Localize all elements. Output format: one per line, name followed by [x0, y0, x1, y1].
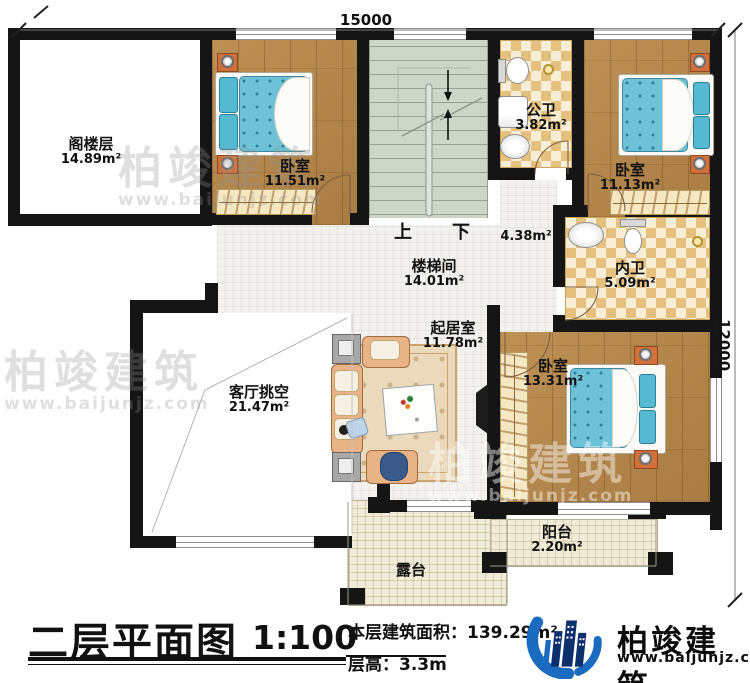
title-underline-thin	[28, 664, 346, 665]
pillar-balcony-se	[648, 552, 673, 575]
wall-bedroom1-bottom-b	[350, 213, 360, 225]
stair-down-label: 下	[452, 218, 470, 244]
floorplan-canvas: 柏竣建筑 www.baijunjz.com 柏竣建筑 www.baijunjz.…	[0, 0, 750, 683]
living-sofa-cushion-1	[334, 370, 359, 392]
floor-height-row: 层高：3.3m	[348, 650, 447, 675]
living-void-floor	[143, 313, 352, 536]
window-void-bottom	[176, 536, 314, 548]
room-label-void: 客厅挑空 21.47m²	[204, 384, 314, 415]
bedroom3-lamp-bottom	[639, 452, 652, 465]
window-bedroom3-right	[710, 378, 722, 462]
bedroom1-lamp-top	[221, 55, 234, 68]
public-bath-toilet-tank	[498, 59, 506, 83]
wall-void-bottom-a	[130, 536, 176, 548]
bedroom1-lamp-bottom	[221, 157, 234, 170]
corridor-patch-floor	[500, 180, 557, 228]
room-label-stairwell: 楼梯间 14.01m²	[390, 258, 478, 289]
inner-bath-shower-knob	[692, 236, 703, 247]
stairwell-floor	[369, 33, 488, 218]
wall-publicbath-bottom-b	[566, 168, 572, 180]
pillar-terrace-sw	[340, 588, 365, 605]
bedroom2-lamp-bottom	[693, 157, 706, 170]
pillar-terrace-top	[368, 497, 390, 513]
room-label-bedroom1: 卧室 11.51m²	[250, 158, 340, 189]
window-stair-top	[394, 28, 466, 40]
brand-logo-icon	[518, 601, 610, 679]
room-label-public-bath: 公卫 3.82m²	[500, 102, 582, 133]
wall-void-left	[130, 300, 143, 548]
attic-room	[8, 28, 212, 226]
wall-innerbath-left-a	[553, 217, 565, 287]
public-bath-shower-knob	[543, 64, 554, 75]
public-bath-sink	[500, 134, 530, 159]
living-side-table-bottom-inner	[338, 458, 354, 474]
bedroom1-wardrobe	[216, 189, 316, 215]
wall-void-bottom-b	[314, 536, 352, 548]
living-armchair-top-cushion	[370, 340, 400, 360]
floor-area-label: 本层建筑面积：	[348, 623, 467, 643]
dimension-right: 12000	[715, 319, 733, 371]
title-underline-thick	[28, 657, 346, 661]
floor-height-value: 3.3m	[399, 655, 447, 675]
room-label-living: 起居室 11.78m²	[408, 320, 498, 351]
floor-height-label: 层高：	[348, 655, 399, 675]
window-bedroom1-top	[236, 28, 336, 40]
pillar-balcony-nw	[474, 502, 506, 519]
room-label-bedroom2: 卧室 11.13m²	[585, 162, 675, 193]
wall-void-top	[130, 300, 218, 313]
inner-bath-toilet-tank	[620, 219, 646, 227]
living-sofa-cushion-2	[334, 394, 359, 416]
room-label-corridor-area: 4.38m²	[486, 230, 566, 245]
bedroom2-wardrobe	[610, 190, 710, 215]
bedroom1-blanket	[274, 77, 310, 151]
bedroom3-pillow-1	[639, 374, 656, 408]
bedroom3-lamp-top	[639, 348, 652, 361]
wall-innerbath-top-a	[553, 205, 588, 217]
inner-bath-toilet-bowl	[624, 228, 642, 254]
living-coffee-table	[382, 384, 438, 436]
window-balcony-door	[558, 502, 650, 515]
bedroom3-pillow-2	[639, 410, 656, 444]
inner-bath-sink	[568, 222, 604, 248]
living-person-seated	[380, 452, 408, 481]
bedroom2-lamp-top	[693, 55, 706, 68]
brand-website: www.baijunjz.com	[617, 650, 750, 666]
room-label-inner-bath: 内卫 5.09m²	[588, 260, 672, 291]
stair-up-label: 上	[394, 218, 412, 244]
living-side-table-top-inner	[338, 340, 354, 356]
room-label-terrace: 露台	[380, 562, 442, 579]
window-bedroom2-top	[594, 28, 692, 40]
plan-scale: 1:100	[252, 618, 357, 657]
room-label-attic: 阁楼层 14.89m²	[43, 136, 139, 167]
dimension-top: 15000	[330, 11, 402, 29]
window-terrace-door	[407, 500, 471, 512]
room-label-bedroom3: 卧室 13.31m²	[508, 358, 598, 389]
bedroom1-pillow-2	[219, 114, 238, 150]
wall-bedroom1-stair	[357, 28, 369, 225]
bedroom1-pillow-1	[219, 77, 238, 113]
wall-innerbath-bottom	[553, 320, 722, 332]
public-bath-toilet-bowl	[506, 57, 529, 84]
pillar-balcony-sw	[482, 552, 507, 573]
room-label-balcony: 阳台 2.20m²	[507, 524, 607, 555]
wall-publicbath-bottom-a	[500, 168, 535, 180]
bedroom2-pillow-2	[693, 116, 710, 149]
bedroom2-pillow-1	[693, 82, 710, 115]
